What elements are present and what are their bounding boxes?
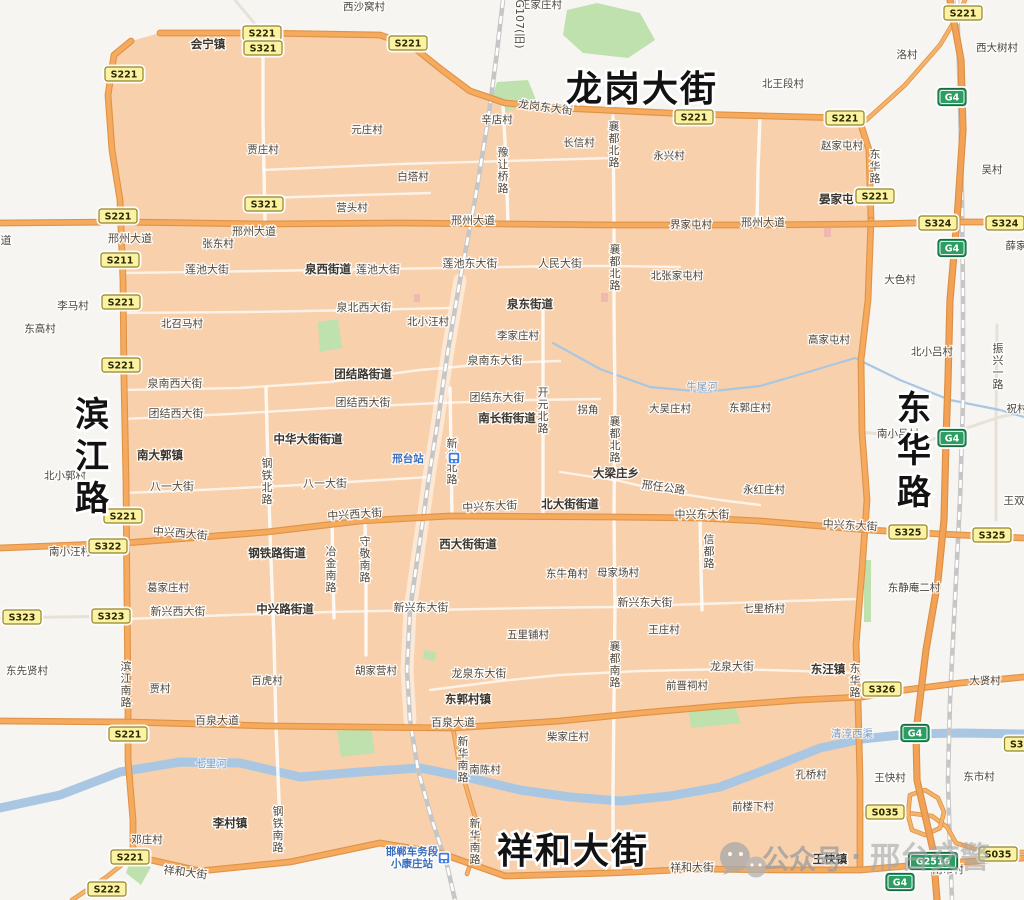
place-label: 七里桥村 [743, 602, 785, 615]
road-shield-s221: S221 [943, 5, 984, 22]
road-label: 新华南路 [470, 816, 481, 866]
road-xingzhou-dadao [0, 222, 1024, 225]
svg-text:S321: S321 [251, 200, 278, 211]
road-label: 邢州大道 [451, 213, 495, 227]
svg-text:S222: S222 [94, 885, 121, 896]
station-label: 邢台站 [391, 452, 424, 465]
station-label: 邯郸车务段 [386, 845, 439, 858]
station-label: 小康庄站 [390, 857, 433, 870]
place-label: 邓庄村 [131, 833, 163, 846]
place-label: 白塔村 [397, 170, 429, 183]
place-label: 南大郭镇 [137, 448, 183, 462]
road-shield-g4: G4 [937, 238, 968, 258]
place-label: 南陈村 [469, 763, 501, 776]
road-shield-s221: S221 [388, 35, 429, 52]
road-shield-g4: G4 [937, 87, 968, 107]
place-label: 北大街街道 [541, 497, 599, 511]
watermark-prefix: 公众号 [762, 845, 843, 876]
road-shield-s323: S323 [91, 608, 132, 625]
park-area [337, 729, 375, 757]
road-label: 邢州大道 [232, 224, 276, 238]
place-label: 北王段村 [762, 77, 804, 90]
road-shield-s221: S221 [101, 294, 142, 311]
road-label: 豫让桥路 [498, 146, 509, 195]
svg-text:S221: S221 [862, 192, 889, 203]
place-label: 孔桥村 [795, 768, 827, 781]
place-label: 前晋祠村 [666, 679, 708, 692]
svg-text:S32: S32 [1010, 740, 1024, 751]
place-label: 东先贤村 [6, 664, 48, 677]
place-label: 高家屯村 [808, 333, 850, 346]
road-label: 百泉大道 [431, 715, 475, 729]
road-label: G107(旧) [513, 0, 526, 49]
road-label: 龙泉东大街 [452, 666, 507, 680]
place-label: 北召马村 [161, 317, 203, 330]
place-label: 赵家屯村 [821, 139, 863, 152]
road-label: 莲池大街 [185, 262, 229, 276]
map-svg: 西沙窝村王家庄村会宁镇辛店村元庄村贾庄村白塔村营头村长信村永兴村赵家屯村晏家屯镇… [0, 0, 1024, 900]
road-shield-s221: S221 [104, 66, 145, 83]
road-shield-g4: G4 [937, 428, 968, 448]
place-label: 东静庵二村 [888, 581, 941, 594]
svg-text:S324: S324 [992, 219, 1019, 230]
svg-text:G4: G4 [893, 878, 908, 889]
place-label: 营头村 [336, 201, 368, 214]
block-marker [601, 293, 608, 302]
place-label: 钢铁路街道 [248, 546, 306, 560]
road-shield-s221: S221 [101, 357, 142, 374]
road-shield-s326: S326 [862, 681, 903, 698]
place-label: 五里铺村 [507, 628, 549, 641]
block-marker [414, 294, 420, 302]
svg-text:S221: S221 [110, 512, 137, 523]
svg-text:S035: S035 [872, 808, 899, 819]
road-label: 襄都北路 [609, 119, 620, 169]
place-label: 张东村 [202, 237, 234, 250]
place-label: 葛家庄村 [147, 581, 189, 594]
svg-text:S325: S325 [979, 531, 1006, 542]
svg-text:G4: G4 [945, 93, 960, 104]
place-label: 会宁镇 [190, 37, 226, 51]
place-label: 大吴庄村 [649, 402, 691, 415]
svg-text:S221: S221 [108, 298, 135, 309]
road-shield-s321: S321 [243, 40, 284, 57]
svg-text:S221: S221 [108, 361, 135, 372]
road-label: 新兴东大街 [618, 595, 673, 609]
place-label: 大梁庄乡 [593, 466, 639, 480]
svg-text:S221: S221 [115, 730, 142, 741]
boundary-street-label: 龙岗大街 [566, 69, 718, 110]
place-label: 洛村 [897, 48, 918, 61]
road-shield-s323: S323 [2, 609, 43, 626]
place-label: 东市村 [963, 770, 995, 783]
svg-text:S321: S321 [250, 44, 277, 55]
road-label: 新华南路 [458, 734, 469, 784]
road-label: 滨江南路 [121, 659, 132, 709]
svg-text:S323: S323 [9, 613, 36, 624]
place-label: 王双 [1004, 495, 1024, 507]
place-label: 泉东街道 [506, 297, 553, 311]
svg-text:S221: S221 [950, 9, 977, 20]
boundary-street-label: 东华路 [897, 389, 932, 513]
svg-text:S322: S322 [95, 542, 122, 553]
road-label: 八一大街 [150, 479, 194, 493]
place-label: 元庄村 [351, 123, 383, 136]
place-label: 母家场村 [597, 566, 639, 579]
road-label: 祥和大街 [670, 860, 714, 874]
place-label: 西沙窝村 [343, 0, 385, 13]
road-label: 开元北路 [538, 386, 549, 435]
svg-text:S211: S211 [107, 256, 134, 267]
place-label: 薛家 [1006, 239, 1024, 252]
restriction-zone-polygon [108, 33, 871, 876]
park-area [318, 319, 342, 352]
road-shield-s221: S221 [108, 726, 149, 743]
water-label: 牛尾河 [686, 380, 718, 393]
road-shield-s325: S325 [888, 524, 929, 541]
road-shield-g4: G4 [900, 723, 931, 743]
road-label: 邢州大道 [108, 231, 152, 245]
place-label: 界家屯村 [670, 218, 712, 231]
svg-text:S324: S324 [925, 219, 952, 230]
road-label: 钢铁南路 [273, 805, 284, 854]
road-shield-s322: S322 [88, 538, 129, 555]
svg-text:G4: G4 [945, 434, 960, 445]
svg-text:S221: S221 [681, 113, 708, 124]
place-label: 李村镇 [212, 816, 248, 830]
place-label: 前楼下村 [732, 800, 774, 813]
place-label: 东郭村镇 [445, 692, 491, 706]
place-label: 中华大街街道 [274, 432, 343, 446]
road-label: 襄都南路 [610, 639, 621, 689]
road-xindu-lu [700, 517, 702, 610]
place-label: 贾庄村 [247, 143, 279, 156]
road-label: 中兴东大街 [462, 498, 518, 515]
road-label: 信都路 [704, 533, 715, 570]
block-marker [824, 228, 831, 237]
road-shield-s221: S221 [674, 109, 715, 126]
place-label: 王庄村 [648, 623, 680, 636]
road-label: 八一大街 [303, 476, 347, 490]
svg-text:S325: S325 [895, 528, 922, 539]
road-label: 团结东大街 [470, 390, 525, 404]
place-label: 南长街街道 [478, 411, 536, 425]
road-label: 百泉大道 [195, 713, 239, 727]
place-label: 大贤村 [969, 674, 1001, 687]
road-label: 莲池大街 [356, 262, 400, 276]
road-label: 道 [1, 233, 12, 247]
place-label: 北小吕村 [911, 345, 953, 358]
road-label: 团结西大街 [336, 395, 391, 409]
place-label: 东牛角村 [546, 567, 588, 580]
place-label: 西大树村 [976, 41, 1018, 54]
map-canvas: 西沙窝村王家庄村会宁镇辛店村元庄村贾庄村白塔村营头村长信村永兴村赵家屯村晏家屯镇… [0, 0, 1024, 900]
svg-text:S221: S221 [395, 39, 422, 50]
road-label: 冶金南路 [326, 544, 337, 594]
road-label: 东华路 [870, 148, 881, 185]
watermark-separator: · [851, 842, 861, 873]
road-label: 襄都北路 [610, 242, 621, 292]
place-label: 东郭庄村 [729, 401, 771, 414]
road-label: 团结西大街 [149, 406, 204, 420]
place-label: 百虎村 [251, 674, 283, 687]
svg-text:S326: S326 [869, 685, 896, 696]
road-shield-s221: S221 [855, 188, 896, 205]
place-label: 祝村 [1007, 402, 1024, 415]
road-label: 新兴西大街 [151, 604, 206, 618]
place-label: 北张家屯村 [651, 269, 704, 282]
place-label: 西大街街道 [439, 537, 497, 551]
road-label: 中兴东大街 [675, 507, 730, 521]
road-shield-s211: S211 [100, 252, 141, 269]
road-shield-s325: S325 [972, 527, 1013, 544]
road-shield-s324: S324 [918, 215, 959, 232]
road-shield-s321: S321 [244, 196, 285, 213]
svg-text:S221: S221 [111, 70, 138, 81]
place-label: 东高村 [24, 322, 56, 335]
boundary-street-label: 祥和大街 [497, 831, 649, 872]
place-label: 泉西街道 [304, 262, 351, 276]
road-label: 邢州大道 [741, 215, 785, 229]
water-label: 七里河 [195, 758, 227, 770]
road-label: 中兴东大街 [822, 517, 878, 534]
road-label: 人民大街 [538, 256, 582, 270]
road-shield-s221: S221 [98, 208, 139, 225]
place-label: 李马村 [57, 299, 89, 312]
road-shield-s221: S221 [825, 110, 866, 127]
svg-text:G4: G4 [908, 729, 923, 740]
road-shield-s035: S035 [865, 804, 906, 821]
svg-text:S323: S323 [98, 612, 125, 623]
place-label: 李家庄村 [497, 329, 539, 342]
place-label: 吴村 [982, 163, 1003, 176]
svg-text:S221: S221 [117, 853, 144, 864]
restriction-zone-layer [108, 33, 871, 876]
place-label: 柴家庄村 [547, 730, 589, 743]
road-label: 钢铁北路 [262, 457, 273, 506]
place-label: 拐角 [578, 403, 599, 416]
road-xiangdu-lu [613, 116, 615, 870]
road-shield-s324: S324 [985, 215, 1024, 232]
road-label: 莲池东大街 [443, 256, 498, 270]
place-label: 辛店村 [481, 113, 513, 126]
road-label: 振兴一路 [993, 341, 1004, 391]
place-label: 长信村 [563, 136, 595, 149]
svg-text:G4: G4 [945, 244, 960, 255]
place-label: 胡家营村 [355, 664, 397, 677]
road-label: 襄都北路 [610, 414, 621, 464]
place-label: 大色村 [884, 273, 916, 286]
road-label: 龙泉大街 [710, 659, 754, 673]
place-label: 团结路街道 [334, 367, 392, 381]
road-label: 东华路 [850, 662, 861, 699]
boundary-street-label: 滨江路 [75, 395, 110, 519]
place-label: 永红庄村 [743, 483, 785, 496]
place-label: 北小汪村 [407, 315, 449, 328]
water-label: 清淳西渠 [831, 727, 873, 740]
place-label: 南小汪村 [49, 545, 91, 558]
svg-text:S221: S221 [105, 212, 132, 223]
road-label: 新兴东大街 [394, 600, 449, 614]
svg-text:S221: S221 [249, 29, 276, 40]
place-label: 中兴路街道 [256, 602, 314, 616]
road-label: 泉南西大街 [148, 376, 203, 390]
road-label: 守敬南路 [360, 534, 371, 584]
road-label: 泉北西大街 [337, 300, 392, 314]
place-label: 东汪镇 [811, 662, 846, 676]
road-label: 泉南东大街 [468, 353, 523, 367]
place-label: 王快村 [874, 771, 906, 784]
watermark-name: 邢台交警 [870, 841, 990, 876]
road-shield-s222: S222 [87, 881, 128, 898]
road-shield-s32: S32 [1003, 736, 1024, 753]
place-label: 永兴村 [653, 149, 685, 162]
place-label: 贾村 [150, 682, 171, 695]
svg-text:S221: S221 [832, 114, 859, 125]
road-shield-s221: S221 [110, 849, 151, 866]
